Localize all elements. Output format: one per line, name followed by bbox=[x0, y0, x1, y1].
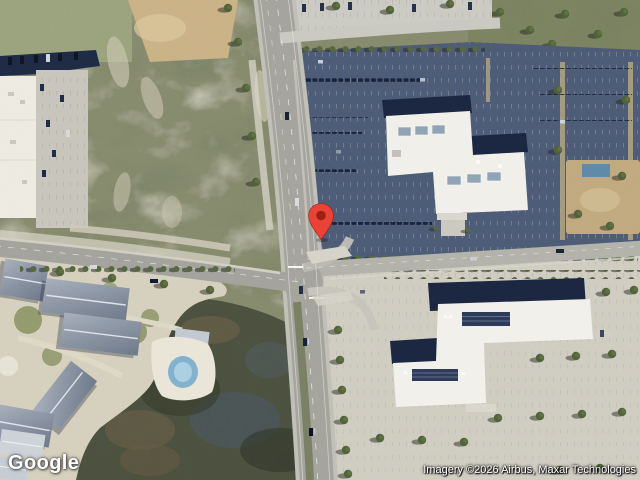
map-pin-marker[interactable] bbox=[307, 202, 335, 242]
pin-dot bbox=[316, 211, 326, 221]
pin-body bbox=[309, 204, 334, 240]
google-logo[interactable]: Google bbox=[8, 452, 79, 475]
map-canvas[interactable]: Google Imagery ©2026 Airbus, Maxar Techn… bbox=[0, 0, 640, 480]
imagery-attribution: Imagery ©2026 Airbus, Maxar Technologies bbox=[423, 464, 636, 476]
